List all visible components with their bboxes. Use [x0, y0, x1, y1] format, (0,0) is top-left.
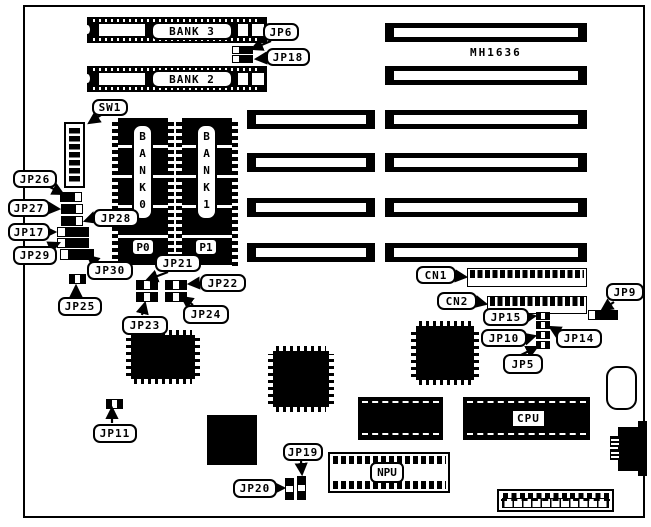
callout-jp14-text: JP14 — [564, 332, 595, 345]
callout-jp19-text: JP19 — [288, 446, 319, 459]
leader-jp15 — [528, 316, 535, 317]
callout-jp28: JP28 — [93, 209, 139, 227]
callout-jp10: JP10 — [481, 329, 527, 347]
bank3-label-text: BANK 3 — [169, 25, 215, 38]
leader-jp9 — [602, 302, 614, 310]
callout-jp26-text: JP26 — [20, 173, 51, 186]
callout-jp29: JP29 — [13, 246, 57, 265]
callout-jp11-text: JP11 — [100, 427, 131, 440]
callout-jp23: JP23 — [122, 316, 168, 335]
motherboard-diagram: MH1636 BANK 3 BANK 2 BANK0 — [0, 0, 651, 527]
callout-jp22: JP22 — [200, 274, 246, 292]
leader-jp10 — [528, 336, 535, 338]
callout-jp29-text: JP29 — [20, 249, 51, 262]
leader-jp26 — [50, 187, 63, 194]
callout-jp26: JP26 — [13, 170, 57, 188]
callout-jp30: JP30 — [87, 261, 133, 280]
bank3-label: BANK 3 — [151, 22, 233, 40]
callout-cn1: CN1 — [416, 266, 456, 284]
callout-jp17-text: JP17 — [14, 226, 45, 239]
leader-jp24 — [182, 297, 193, 305]
leader-sw1 — [89, 115, 101, 123]
callout-jp9: JP9 — [606, 283, 644, 301]
leader-cn1 — [456, 276, 466, 277]
callout-sw1-text: SW1 — [99, 101, 122, 114]
bank2-label-text: BANK 2 — [169, 73, 215, 86]
callout-jp23-text: JP23 — [130, 319, 161, 332]
callout-cn1-text: CN1 — [425, 269, 448, 282]
callout-jp19: JP19 — [283, 443, 323, 461]
callout-jp22-text: JP22 — [208, 277, 239, 290]
callout-jp18-text: JP18 — [273, 51, 304, 64]
callout-jp11: JP11 — [93, 424, 137, 443]
callout-jp27-text: JP27 — [14, 202, 45, 215]
leader-cn2 — [477, 302, 486, 304]
callout-jp10-text: JP10 — [489, 332, 520, 345]
callout-jp15-text: JP15 — [491, 311, 522, 324]
callout-jp28-text: JP28 — [101, 212, 132, 225]
callout-jp6: JP6 — [263, 23, 299, 41]
callout-jp5: JP5 — [503, 354, 543, 374]
callout-jp24: JP24 — [183, 305, 229, 324]
leader-jp6 — [252, 41, 271, 49]
leader-jp14 — [550, 327, 557, 331]
callout-jp20-text: JP20 — [240, 482, 271, 495]
callout-cn2: CN2 — [437, 292, 477, 310]
callout-jp30-text: JP30 — [95, 264, 126, 277]
callout-jp6-text: JP6 — [270, 26, 293, 39]
callout-jp17: JP17 — [8, 223, 50, 241]
leader-jp23 — [142, 303, 145, 315]
callout-jp5-text: JP5 — [512, 358, 535, 371]
callout-jp15: JP15 — [483, 308, 529, 326]
bank2-label: BANK 2 — [151, 70, 233, 88]
leader-jp21 — [147, 272, 168, 280]
callout-sw1: SW1 — [92, 99, 128, 116]
callout-jp25: JP25 — [58, 297, 102, 316]
callout-jp14: JP14 — [556, 329, 602, 348]
callout-jp21: JP21 — [155, 254, 201, 272]
callout-jp27: JP27 — [8, 199, 50, 217]
leader-jp19 — [301, 461, 302, 474]
callout-jp25-text: JP25 — [65, 300, 96, 313]
callout-jp24-text: JP24 — [191, 308, 222, 321]
callout-jp20: JP20 — [233, 479, 277, 498]
callout-cn2-text: CN2 — [446, 295, 469, 308]
callout-jp21-text: JP21 — [163, 257, 194, 270]
callout-jp18: JP18 — [266, 48, 310, 66]
callout-jp9-text: JP9 — [614, 286, 637, 299]
